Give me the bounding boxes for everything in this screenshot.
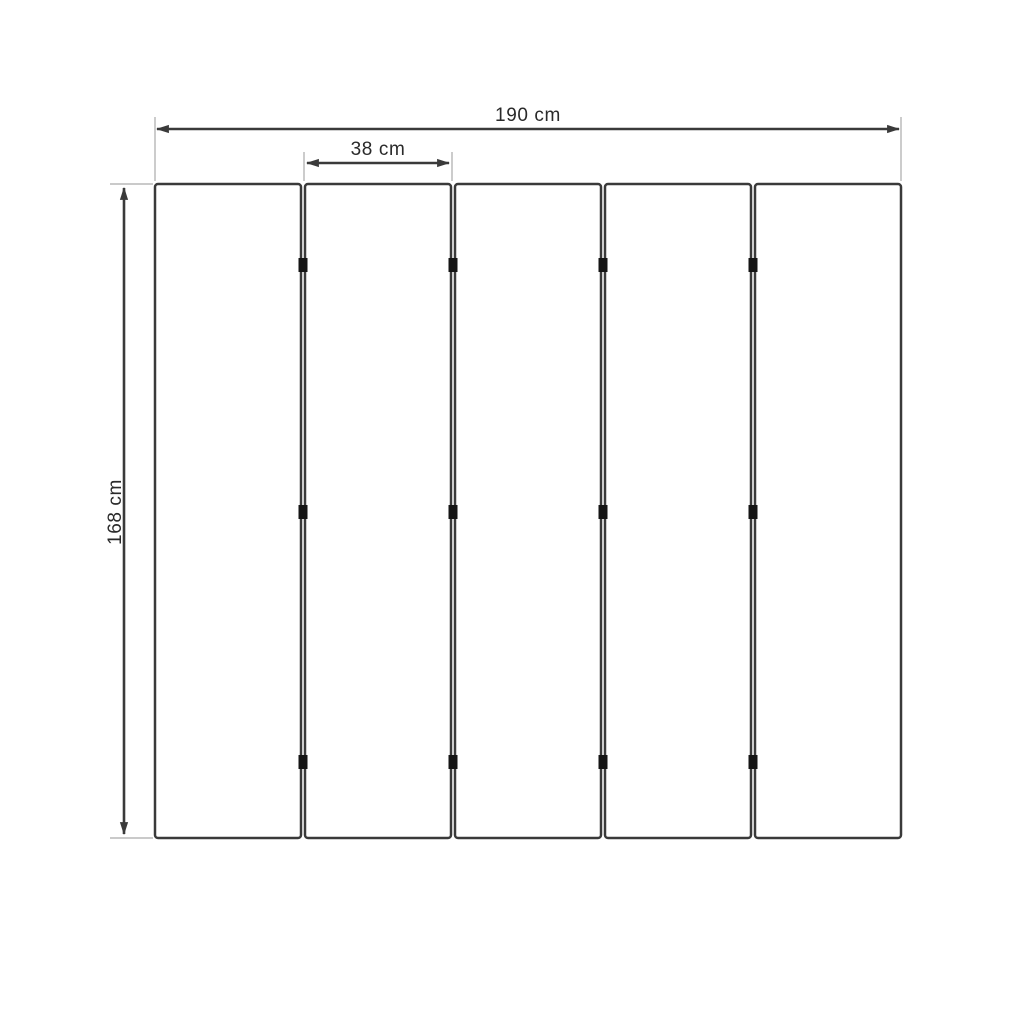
- hinge-mark: [749, 258, 758, 272]
- panel-5: [755, 184, 901, 838]
- hinge-mark: [749, 755, 758, 769]
- hinge-mark: [299, 258, 308, 272]
- panel-3: [455, 184, 601, 838]
- hinge-mark: [449, 258, 458, 272]
- panel-width-label: 38 cm: [351, 139, 406, 160]
- hinge-mark: [299, 755, 308, 769]
- hinge-mark: [599, 258, 608, 272]
- panel-2: [305, 184, 451, 838]
- dimension-diagram: 190 cm 38 cm 168 cm: [0, 0, 1024, 1024]
- panel-1: [155, 184, 301, 838]
- hinge-mark: [299, 505, 308, 519]
- dimension-height: 168 cm: [105, 184, 153, 838]
- hinge-mark: [749, 505, 758, 519]
- hinge-mark: [449, 755, 458, 769]
- panel-4: [605, 184, 751, 838]
- dimension-total-width: 190 cm: [155, 105, 901, 181]
- dimension-panel-width: 38 cm: [304, 139, 452, 181]
- hinge-mark: [599, 755, 608, 769]
- total-width-label: 190 cm: [495, 105, 561, 126]
- panels-group: [155, 184, 901, 838]
- height-label: 168 cm: [105, 479, 126, 545]
- folding-screen-drawing: 190 cm 38 cm 168 cm: [0, 0, 1024, 1024]
- hinge-mark: [449, 505, 458, 519]
- hinge-mark: [599, 505, 608, 519]
